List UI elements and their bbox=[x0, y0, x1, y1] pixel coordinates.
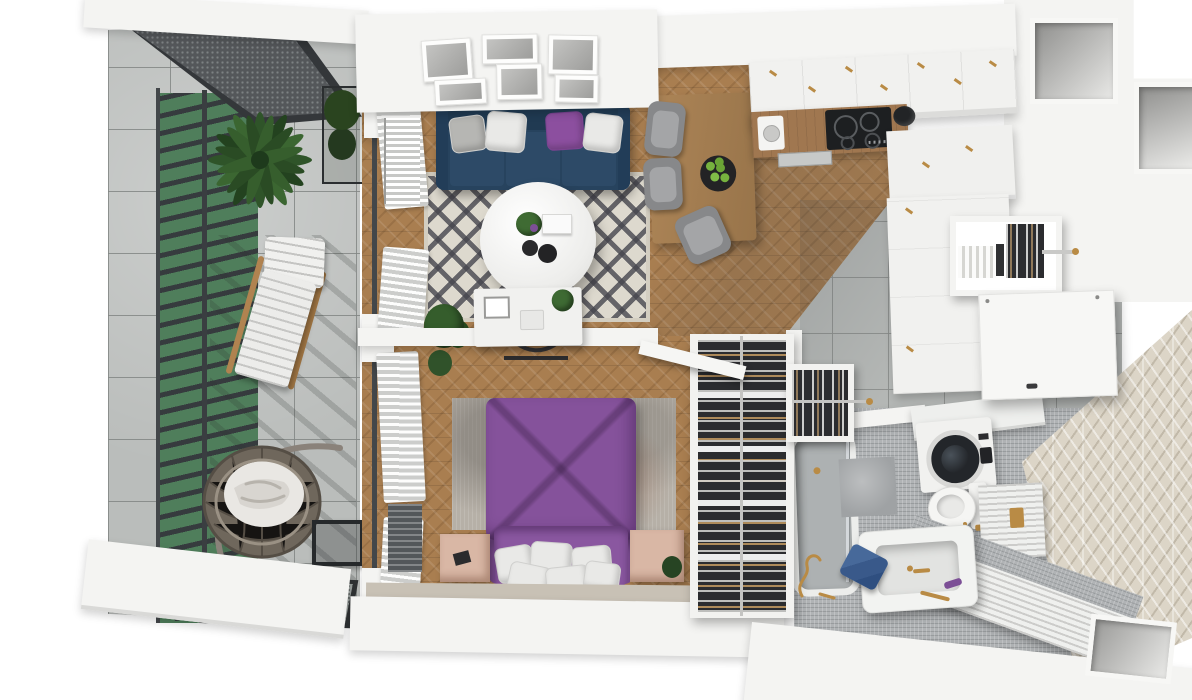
gallery-image-1 bbox=[426, 43, 468, 78]
bed bbox=[486, 396, 636, 588]
gallery-image-3 bbox=[487, 39, 533, 60]
desk bbox=[474, 287, 583, 347]
chair-seat bbox=[649, 166, 677, 202]
palm-plant bbox=[188, 92, 330, 234]
coffee-table-plant bbox=[516, 212, 542, 236]
coffee-table-books bbox=[542, 214, 572, 234]
shelf-books bbox=[958, 246, 996, 278]
canister-lid bbox=[763, 125, 781, 143]
small-wardrobe-clothes bbox=[792, 370, 848, 436]
gallery-frame-4 bbox=[496, 63, 543, 100]
pillow-white-2 bbox=[582, 112, 624, 154]
washer-glass bbox=[940, 444, 970, 474]
gallery-frame-2 bbox=[434, 77, 487, 106]
gold-shower-hose bbox=[792, 548, 840, 604]
kitchen-tall-cabinet-top bbox=[886, 125, 1016, 205]
cabinet-handle bbox=[989, 60, 997, 67]
nightstand-plant bbox=[662, 556, 682, 578]
shelf-hanging-clothes bbox=[1006, 224, 1044, 278]
cabinet-handle bbox=[905, 207, 913, 214]
radiator-bedroom-dark bbox=[388, 504, 422, 572]
brass-niche bbox=[1009, 507, 1024, 528]
sofa-armrest-left bbox=[436, 104, 448, 190]
wall-notch-1 bbox=[1030, 18, 1118, 104]
cabinet-handle bbox=[880, 84, 888, 91]
dining-chair-1 bbox=[643, 100, 686, 158]
living-top-wall bbox=[355, 9, 659, 112]
gallery-frame-3 bbox=[482, 33, 539, 64]
burner-2 bbox=[859, 111, 880, 132]
small-wardrobe bbox=[786, 364, 854, 442]
wall-notch-3 bbox=[1085, 614, 1177, 685]
curtain-bedroom-1 bbox=[376, 351, 426, 503]
cabinet-handle bbox=[917, 62, 925, 69]
gallery-image-2 bbox=[439, 83, 482, 101]
door-handle bbox=[1026, 383, 1037, 388]
counter-canister bbox=[757, 115, 785, 150]
gallery-frame-6 bbox=[554, 74, 598, 103]
gallery-frame-5 bbox=[548, 34, 599, 75]
chair-seat bbox=[650, 110, 680, 150]
railing-edge bbox=[156, 88, 160, 623]
desk-plant bbox=[552, 289, 574, 311]
cabinet-handle bbox=[769, 70, 777, 77]
wall-notch-2 bbox=[1134, 82, 1192, 174]
pillow-purple bbox=[545, 111, 586, 152]
floor-plan-scene bbox=[0, 0, 1192, 700]
gallery-image-4 bbox=[501, 68, 537, 95]
shower-drain-gold bbox=[813, 467, 820, 474]
duvet-purple bbox=[486, 398, 636, 540]
sofa bbox=[436, 104, 630, 190]
cabinet-handle bbox=[845, 66, 853, 73]
open-shelf-unit bbox=[950, 216, 1062, 296]
extractor bbox=[778, 151, 833, 168]
cooktop-controls bbox=[869, 140, 887, 144]
dining-chair-2 bbox=[643, 157, 684, 211]
cabinet-handle bbox=[808, 86, 816, 93]
radiator-living bbox=[384, 118, 420, 204]
rail-end-gold bbox=[1072, 248, 1079, 255]
plant-flower bbox=[530, 224, 538, 232]
cabinet-handle bbox=[922, 161, 930, 168]
bath-mat bbox=[839, 457, 898, 518]
washer-detergent-drawer bbox=[979, 447, 992, 464]
gallery-image-6 bbox=[559, 79, 593, 98]
desk-photo-frame bbox=[484, 296, 510, 318]
coffee-table bbox=[480, 182, 596, 298]
fruit-bowl bbox=[700, 155, 737, 192]
planter-foliage bbox=[324, 90, 360, 130]
vase-large bbox=[538, 244, 557, 263]
small-wardrobe-rail bbox=[792, 400, 868, 403]
gallery-image-5 bbox=[553, 40, 594, 71]
cabinet-handle bbox=[954, 78, 962, 85]
alarm-clock bbox=[453, 550, 472, 566]
pillow-white-1 bbox=[484, 110, 527, 153]
cabinet-handle bbox=[906, 345, 914, 352]
vase-small bbox=[522, 240, 538, 256]
nightstand-right bbox=[630, 530, 684, 582]
pot bbox=[893, 106, 916, 127]
washer-control bbox=[978, 433, 988, 440]
induction-cooktop bbox=[825, 107, 893, 150]
burner-3 bbox=[840, 136, 855, 151]
gallery-frame-1 bbox=[421, 37, 474, 82]
cabinet-handle bbox=[965, 145, 973, 152]
door-hinges bbox=[985, 299, 989, 303]
entry-door bbox=[978, 290, 1118, 401]
nightstand-left bbox=[440, 534, 490, 582]
pillow-gray bbox=[448, 114, 489, 155]
bedroom-plant-small bbox=[428, 350, 452, 376]
desk-laptop bbox=[520, 310, 544, 330]
rail-end-gold bbox=[866, 398, 873, 405]
clothes-rail bbox=[1042, 250, 1076, 254]
chair-seat bbox=[681, 213, 725, 257]
cube-side-table bbox=[312, 520, 364, 566]
shelf-dark-item bbox=[996, 244, 1004, 276]
